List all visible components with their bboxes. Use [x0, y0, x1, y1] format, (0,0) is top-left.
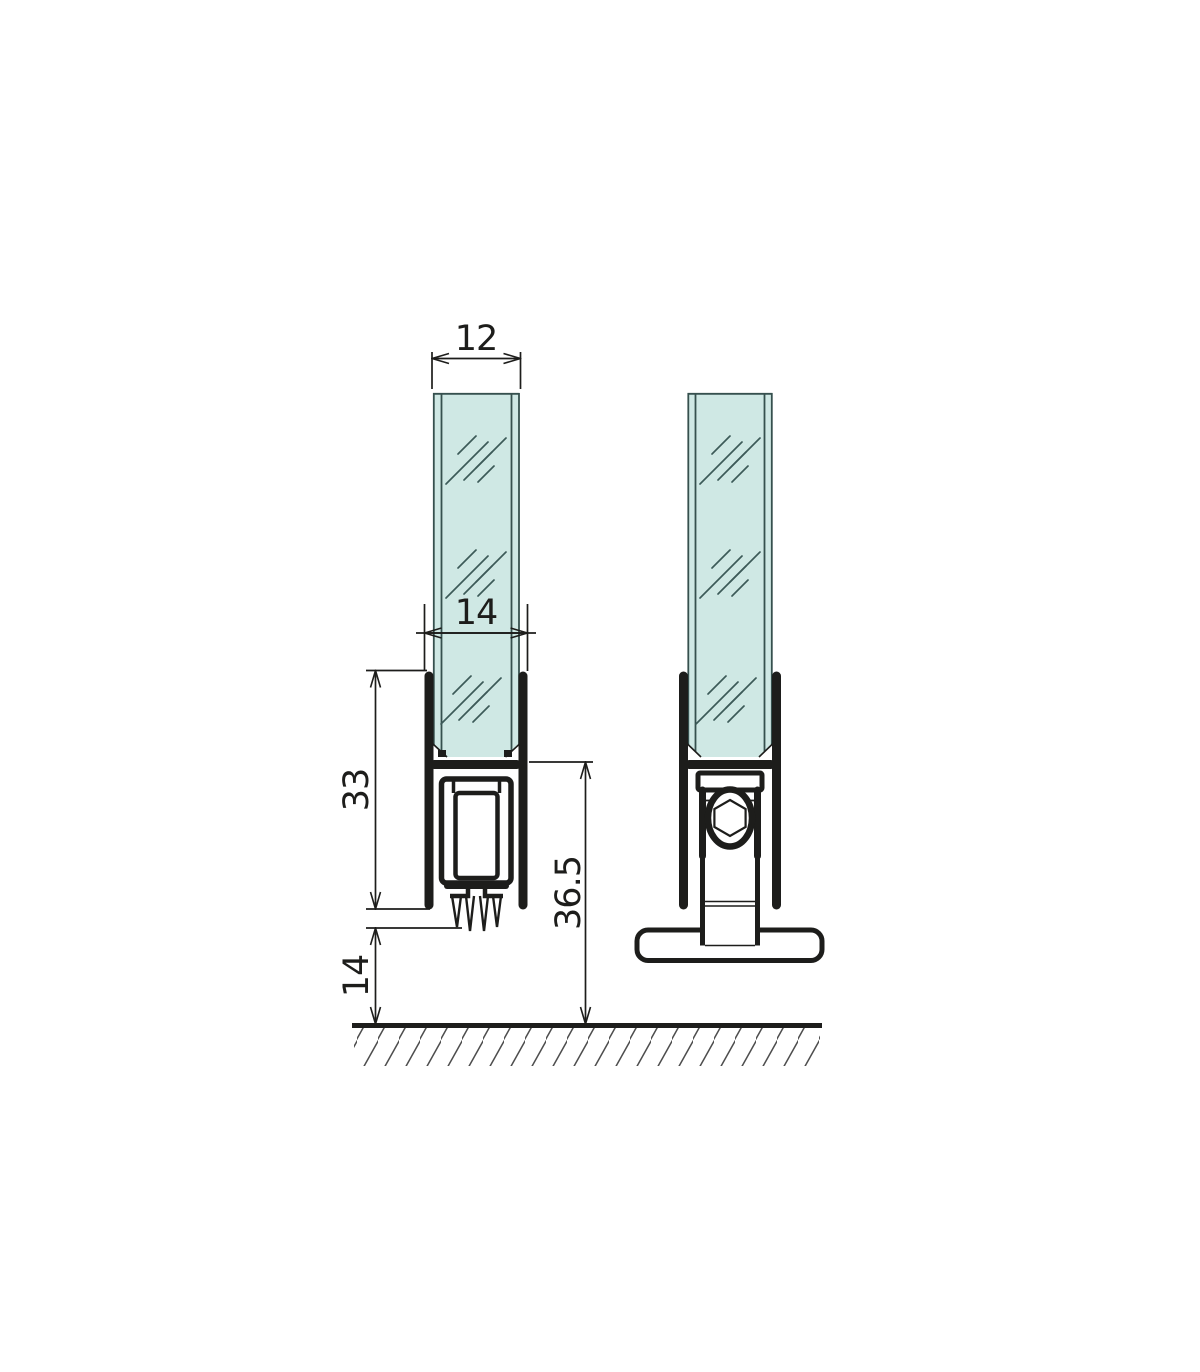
- dimension-12-glass-thickness: 12: [432, 319, 521, 389]
- floor-hatch: [354, 1028, 820, 1066]
- setting-block: [504, 750, 512, 757]
- dimension-33-seal-profile-height: 33: [337, 671, 430, 910]
- seal-hook: [450, 889, 468, 896]
- seal-hook: [485, 889, 503, 896]
- glass-panel-right: [688, 393, 773, 757]
- dimension-label-overall-height: 36.5: [549, 856, 589, 930]
- right-view-clamp-fitting: [637, 393, 822, 961]
- seal-fin: [480, 896, 488, 931]
- left-view-drop-seal-profile: [429, 393, 523, 931]
- drawing-canvas: 12 14 33 14 36.5: [0, 0, 1200, 1372]
- seal-fin: [493, 896, 501, 927]
- dimension-label-floor-clearance: 14: [337, 955, 377, 998]
- technical-drawing: 12 14 33 14 36.5: [0, 0, 1200, 1372]
- seal-housing-inner: [456, 793, 498, 878]
- dimension-14-floor-clearance: 14: [337, 928, 462, 1024]
- dimension-label-channel-width: 14: [455, 593, 498, 633]
- hex-socket-bolt-icon: [714, 800, 745, 836]
- setting-block: [438, 750, 446, 757]
- floor: [352, 1026, 822, 1067]
- dimension-label-seal-profile-height: 33: [337, 769, 377, 812]
- seal-fins: [452, 896, 501, 931]
- dimension-label-glass-thickness: 12: [455, 319, 498, 359]
- stem-mask: [704, 927, 756, 945]
- seal-fin: [452, 896, 461, 927]
- seal-fin: [466, 896, 474, 931]
- dimension-36-5-overall-height: 36.5: [529, 762, 593, 1024]
